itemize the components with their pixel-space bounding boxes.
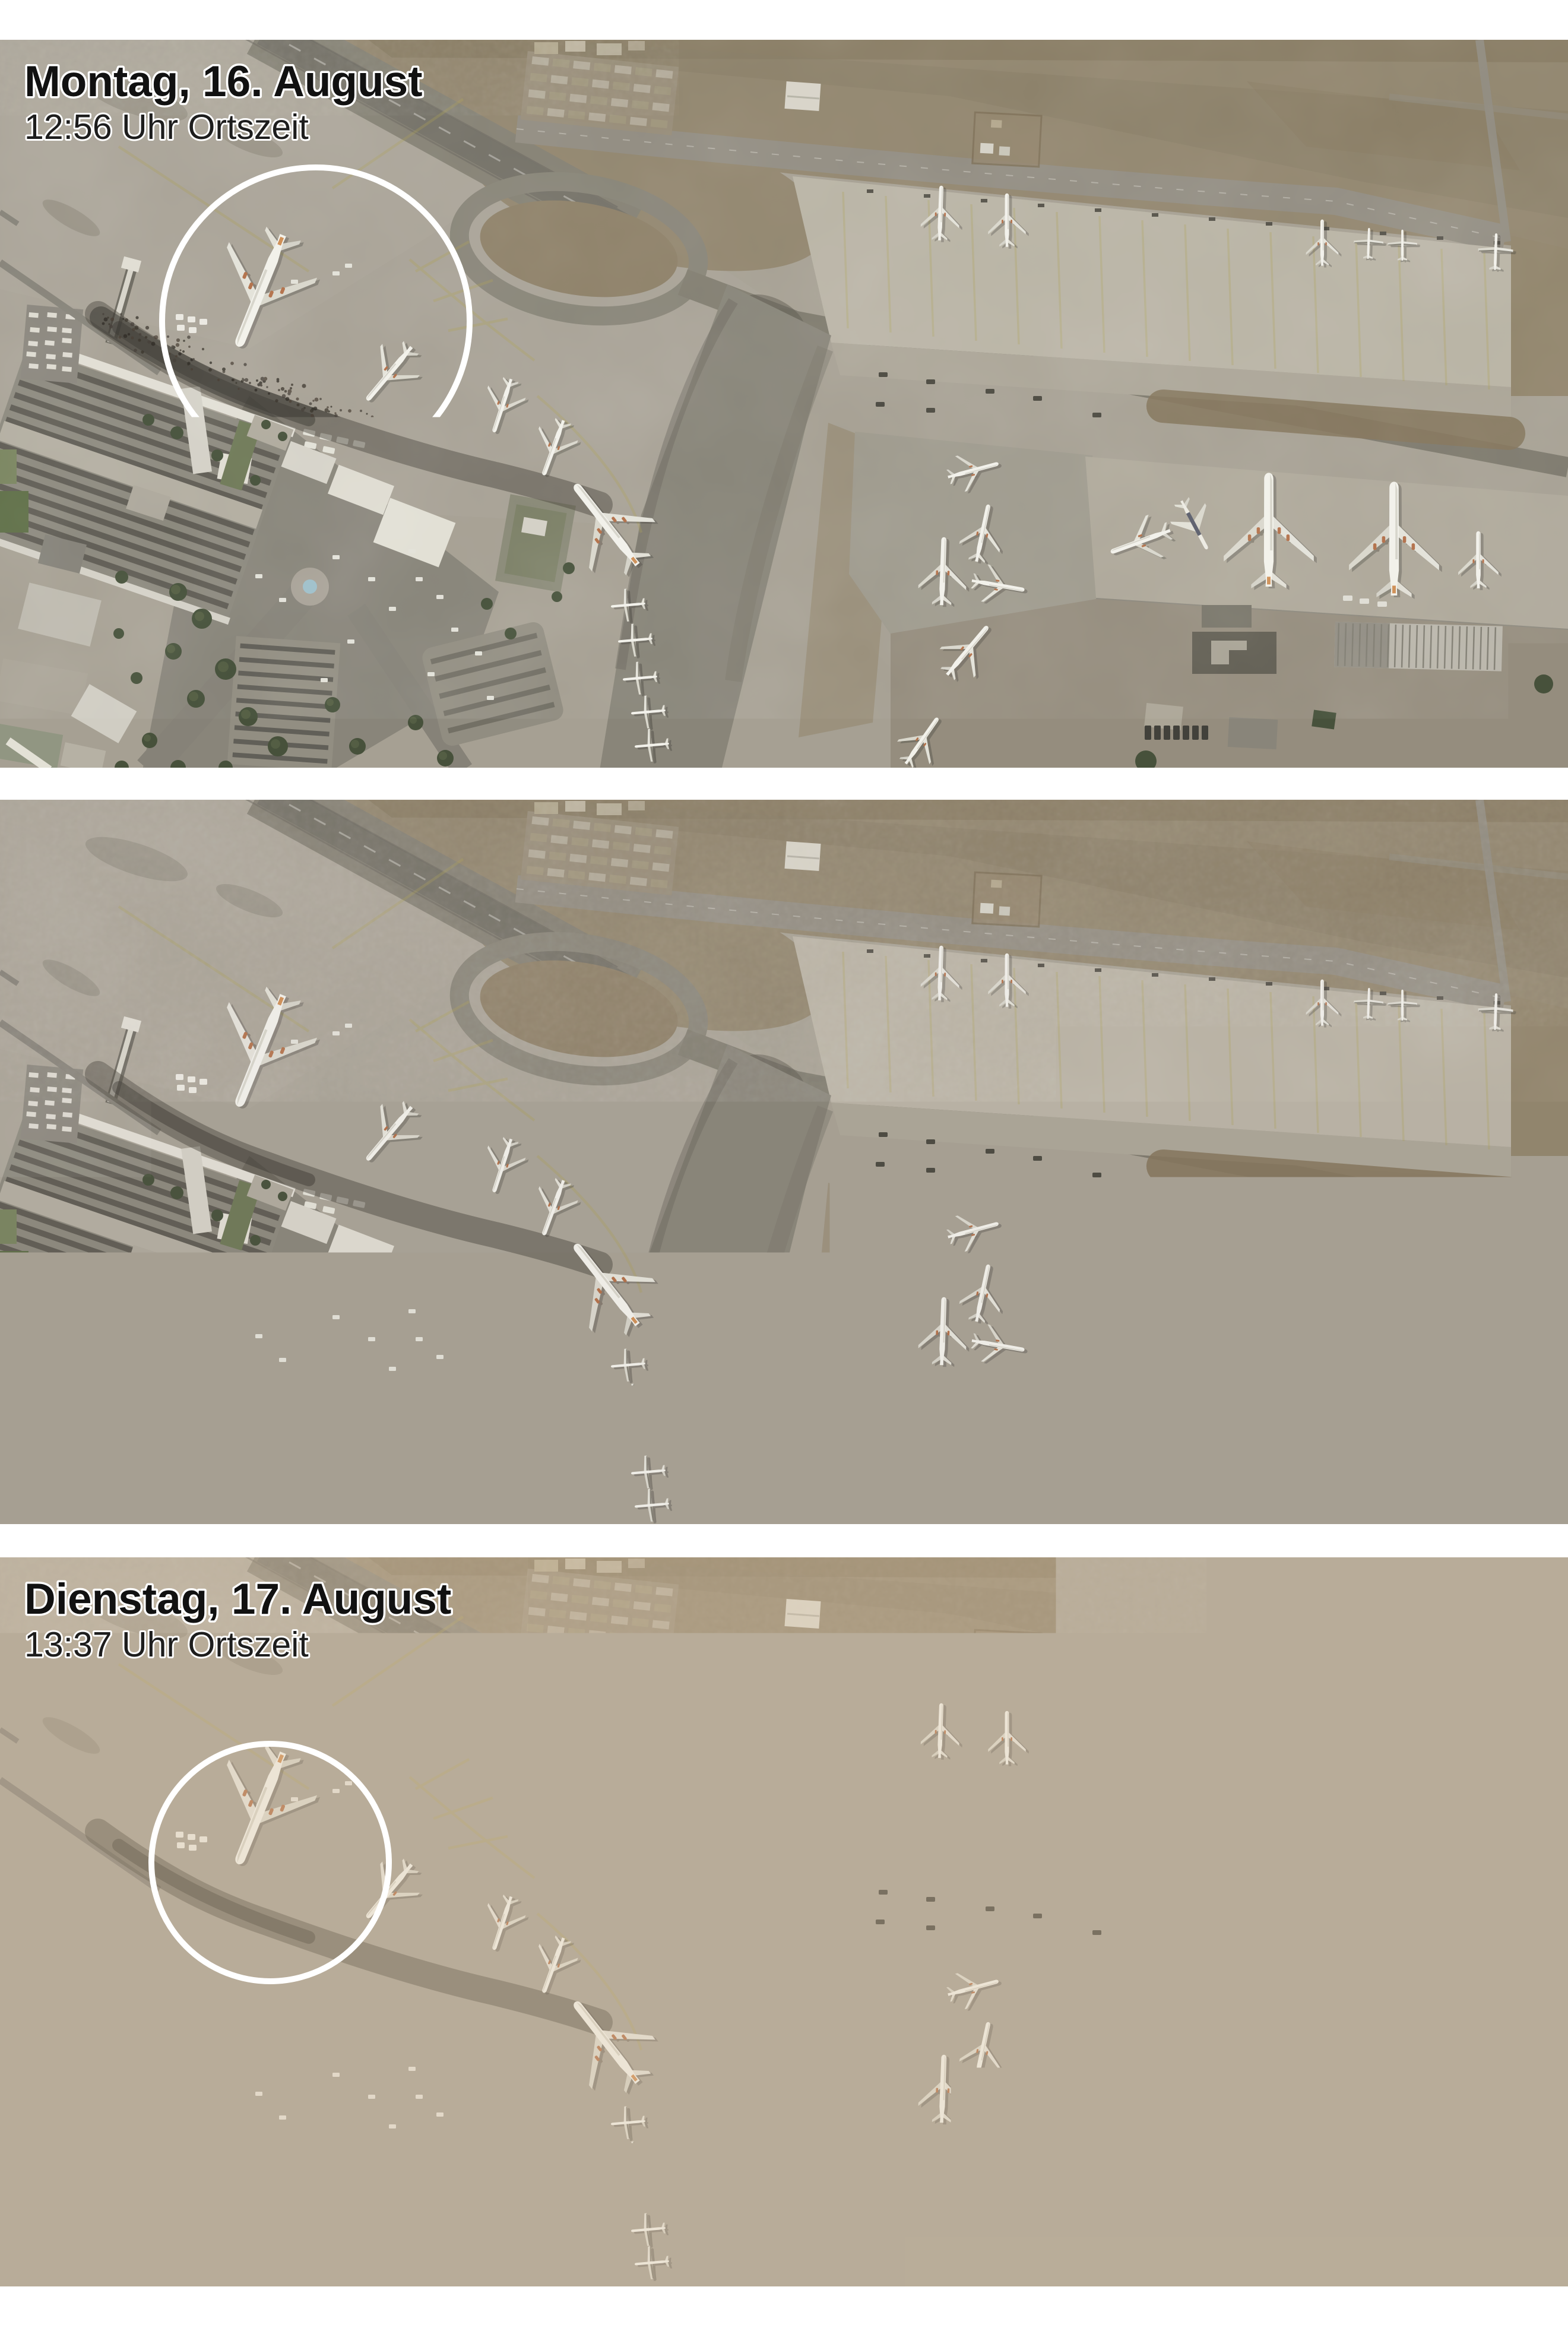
svg-text:12:56 Uhr Ortszeit: 12:56 Uhr Ortszeit [24, 107, 309, 147]
svg-text:Montag, 16. August: Montag, 16. August [24, 818, 423, 866]
svg-text:13:37 Uhr Ortszeit: 13:37 Uhr Ortszeit [24, 1625, 309, 1664]
svg-text:Montag, 16. August: Montag, 16. August [24, 58, 423, 106]
svg-text:Dienstag, 17. August: Dienstag, 17. August [24, 1575, 451, 1623]
svg-text:13:41 Uhr Ortszeit: 13:41 Uhr Ortszeit [24, 867, 309, 907]
